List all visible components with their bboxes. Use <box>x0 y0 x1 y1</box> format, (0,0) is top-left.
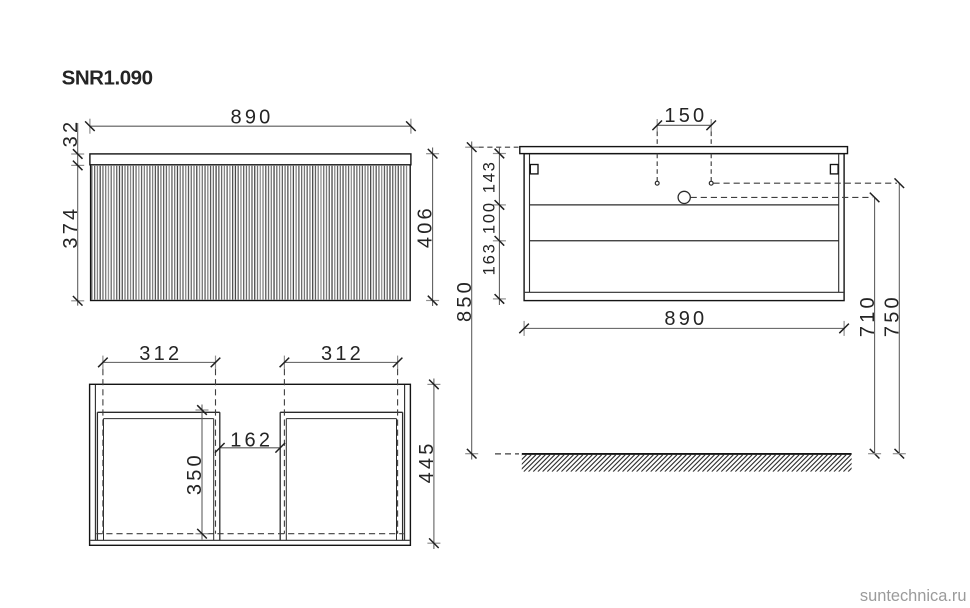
svg-text:750: 750 <box>882 294 904 337</box>
svg-text:162: 162 <box>230 430 273 452</box>
svg-text:445: 445 <box>416 440 438 483</box>
svg-text:350: 350 <box>184 452 206 495</box>
svg-text:850: 850 <box>454 279 476 322</box>
svg-text:312: 312 <box>321 343 364 365</box>
svg-text:150: 150 <box>664 105 707 127</box>
svg-text:710: 710 <box>857 294 879 337</box>
svg-text:890: 890 <box>664 308 707 330</box>
svg-text:312: 312 <box>139 343 182 365</box>
svg-text:163: 163 <box>481 242 499 275</box>
svg-text:143: 143 <box>481 160 499 193</box>
svg-text:32: 32 <box>60 119 82 148</box>
svg-text:890: 890 <box>231 106 274 128</box>
svg-text:406: 406 <box>415 205 437 248</box>
svg-text:SNR1.090: SNR1.090 <box>62 66 153 89</box>
svg-text:100: 100 <box>481 201 499 234</box>
svg-text:374: 374 <box>60 206 82 249</box>
svg-text:suntechnica.ru: suntechnica.ru <box>860 587 967 605</box>
